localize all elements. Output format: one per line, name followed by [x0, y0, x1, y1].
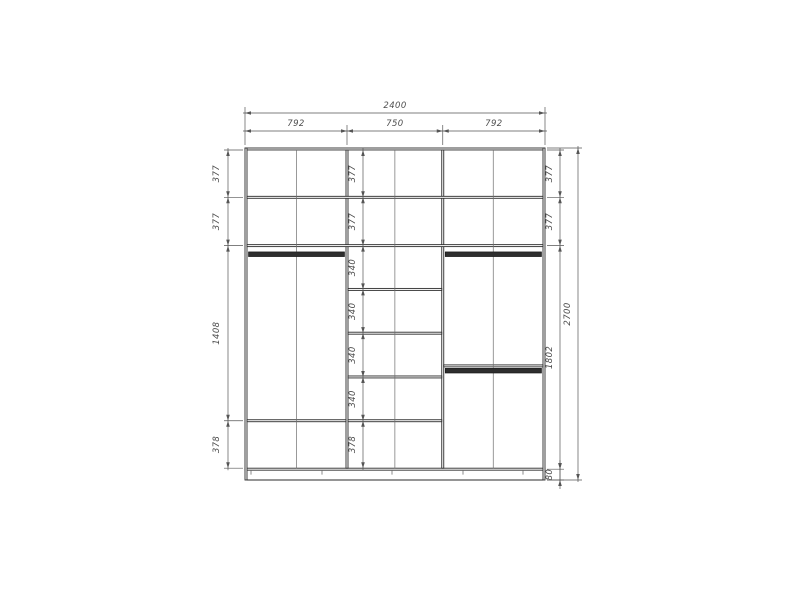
dim-label: 377: [348, 165, 358, 183]
dim-label: 1408: [212, 321, 222, 344]
dim-arrow: [226, 421, 230, 427]
dim-label: 2400: [383, 101, 406, 111]
bottom-panel: [245, 468, 545, 470]
dim-label: 1802: [545, 346, 555, 369]
hanging-rod: [445, 252, 541, 257]
dim-label: 377: [545, 165, 555, 183]
dim-arrow: [226, 415, 230, 421]
wardrobe-elevation-drawing: 2400792750792377377140837837737734034034…: [0, 0, 800, 600]
drawing-canvas: 2400792750792377377140837837737734034034…: [0, 0, 800, 600]
top-panel: [245, 148, 545, 150]
hanging-rod: [249, 252, 345, 257]
dim-label: 378: [212, 436, 222, 454]
dim-chain-vertical: 377377180280: [545, 148, 564, 489]
dim-label: 750: [386, 119, 403, 129]
dim-label: 377: [545, 213, 555, 231]
dim-arrow: [539, 129, 545, 133]
dim-label: 340: [348, 390, 358, 407]
dim-arrow: [245, 111, 251, 115]
dim-arrow: [361, 462, 365, 468]
dim-arrow: [245, 129, 251, 133]
dim-label: 340: [348, 346, 358, 363]
dim-arrow: [347, 129, 353, 133]
dim-label: 377: [212, 165, 222, 183]
dim-arrow: [576, 148, 580, 154]
dim-label: 792: [287, 119, 304, 129]
dim-label: 340: [348, 303, 358, 320]
dim-chain-vertical: 2700: [547, 146, 582, 482]
dim-arrow: [226, 246, 230, 252]
dim-arrow: [226, 197, 230, 203]
dim-arrow: [226, 150, 230, 156]
dim-label: 377: [212, 213, 222, 231]
dim-arrow: [226, 240, 230, 246]
dim-label: 378: [348, 436, 358, 454]
dim-arrow: [539, 111, 545, 115]
dim-arrow: [226, 191, 230, 197]
dim-label: 792: [485, 119, 502, 129]
hanging-rod: [445, 368, 541, 373]
dim-label: 80: [545, 469, 555, 481]
dim-arrow: [558, 197, 562, 203]
dim-arrow: [576, 474, 580, 480]
dim-arrow: [361, 150, 365, 156]
dim-label: 2700: [563, 302, 573, 325]
dim-arrow: [558, 240, 562, 246]
dim-arrow: [341, 129, 347, 133]
dim-arrow: [443, 129, 449, 133]
dim-arrow: [558, 246, 562, 252]
dim-arrow: [226, 462, 230, 468]
dim-arrow: [558, 150, 562, 156]
dim-arrow: [558, 191, 562, 197]
dim-chain-horizontal: 792750792: [243, 119, 547, 145]
dim-chain-vertical: 3773771408378: [212, 148, 243, 470]
dim-label: 377: [348, 213, 358, 231]
dim-arrow: [437, 129, 443, 133]
dim-label: 340: [348, 259, 358, 276]
